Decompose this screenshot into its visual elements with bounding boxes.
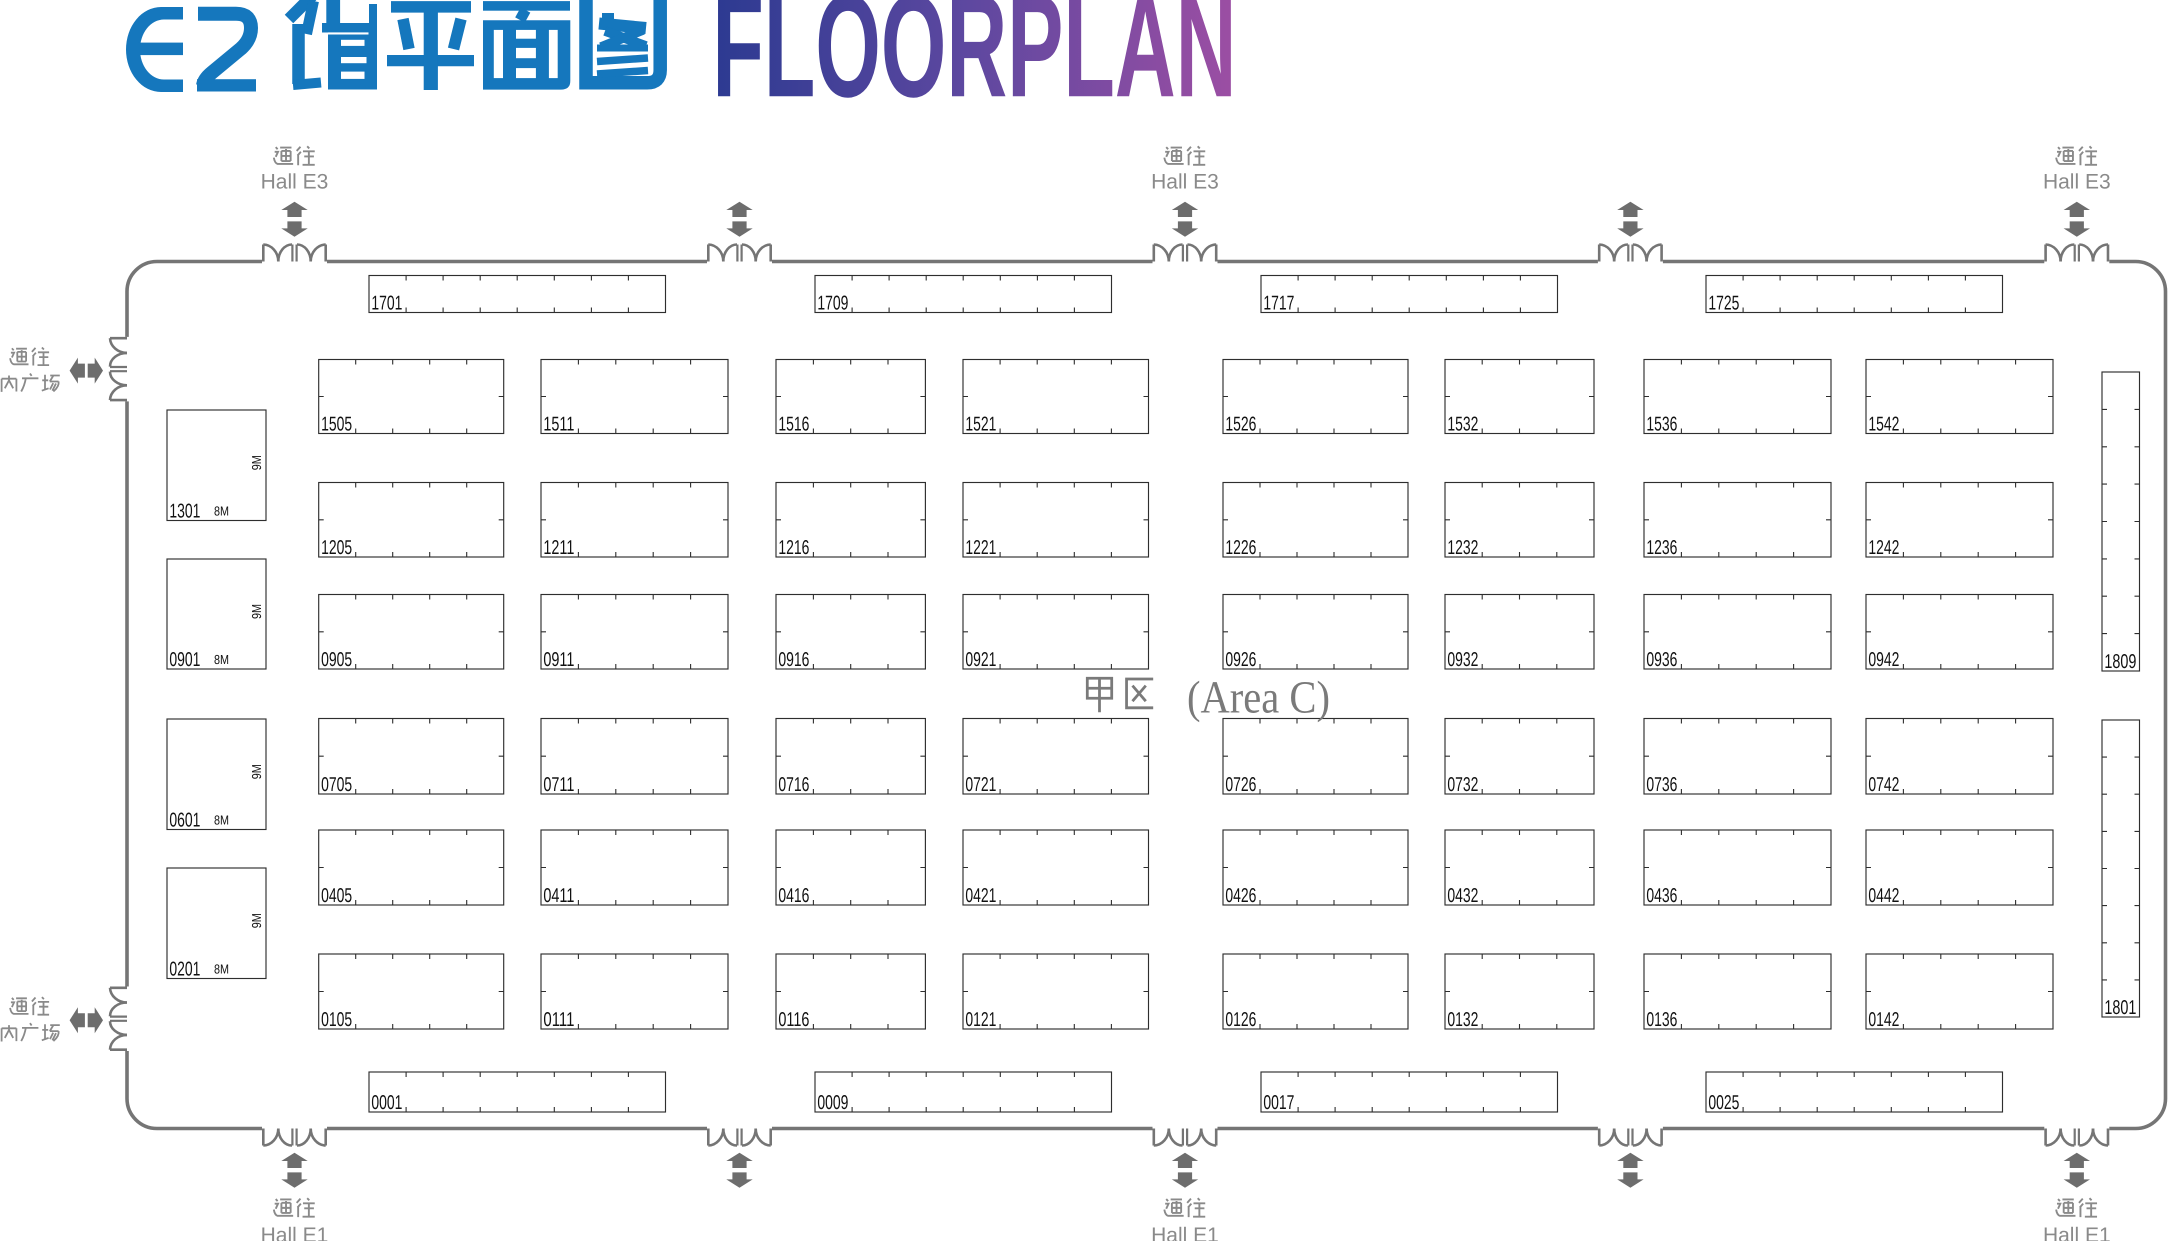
svg-text:0442: 0442 <box>1868 885 1899 907</box>
svg-text:0921: 0921 <box>965 649 996 671</box>
svg-text:1205: 1205 <box>321 537 352 559</box>
svg-text:1532: 1532 <box>1447 413 1478 435</box>
svg-text:(Area C): (Area C) <box>1187 672 1330 723</box>
svg-text:1526: 1526 <box>1225 413 1256 435</box>
svg-text:1211: 1211 <box>543 537 574 559</box>
svg-text:0711: 0711 <box>543 774 574 796</box>
svg-text:Hall E1: Hall E1 <box>2043 1224 2111 1241</box>
svg-text:0105: 0105 <box>321 1009 352 1031</box>
svg-text:1536: 1536 <box>1646 413 1677 435</box>
svg-text:FLOORPLAN: FLOORPLAN <box>712 0 1236 127</box>
svg-text:9M: 9M <box>249 604 264 619</box>
svg-text:1801: 1801 <box>2104 997 2136 1019</box>
svg-text:0436: 0436 <box>1646 885 1677 907</box>
svg-text:1221: 1221 <box>965 537 996 559</box>
svg-text:0726: 0726 <box>1225 774 1256 796</box>
svg-text:1542: 1542 <box>1868 413 1899 435</box>
svg-text:0705: 0705 <box>321 774 352 796</box>
svg-text:0732: 0732 <box>1447 774 1478 796</box>
svg-text:0405: 0405 <box>321 885 352 907</box>
svg-text:1232: 1232 <box>1447 537 1478 559</box>
svg-text:Hall E3: Hall E3 <box>1151 170 1219 193</box>
svg-text:0911: 0911 <box>543 649 574 671</box>
svg-text:0942: 0942 <box>1868 649 1899 671</box>
svg-text:0916: 0916 <box>778 649 809 671</box>
svg-text:1226: 1226 <box>1225 537 1256 559</box>
svg-text:1516: 1516 <box>778 413 809 435</box>
svg-text:1242: 1242 <box>1868 537 1899 559</box>
svg-text:0121: 0121 <box>965 1009 996 1031</box>
svg-text:0901: 0901 <box>169 649 200 671</box>
svg-text:0025: 0025 <box>1708 1092 1739 1114</box>
svg-text:0421: 0421 <box>965 885 996 907</box>
svg-text:0132: 0132 <box>1447 1009 1478 1031</box>
svg-text:1521: 1521 <box>965 413 996 435</box>
svg-text:1511: 1511 <box>543 413 574 435</box>
svg-text:0201: 0201 <box>169 958 200 980</box>
svg-text:1809: 1809 <box>2104 651 2136 673</box>
svg-text:0432: 0432 <box>1447 885 1478 907</box>
svg-text:0926: 0926 <box>1225 649 1256 671</box>
svg-text:Hall E1: Hall E1 <box>1151 1224 1219 1241</box>
svg-text:0601: 0601 <box>169 809 200 831</box>
svg-text:1701: 1701 <box>371 292 402 314</box>
svg-text:0716: 0716 <box>778 774 809 796</box>
svg-text:0416: 0416 <box>778 885 809 907</box>
svg-text:0126: 0126 <box>1225 1009 1256 1031</box>
svg-text:0736: 0736 <box>1646 774 1677 796</box>
svg-text:0136: 0136 <box>1646 1009 1677 1031</box>
svg-text:0426: 0426 <box>1225 885 1256 907</box>
svg-text:9M: 9M <box>249 764 264 779</box>
svg-text:1301: 1301 <box>169 500 200 522</box>
svg-text:Hall E3: Hall E3 <box>2043 170 2111 193</box>
svg-text:0116: 0116 <box>778 1009 809 1031</box>
svg-text:8M: 8M <box>214 652 229 667</box>
svg-text:1216: 1216 <box>778 537 809 559</box>
svg-text:0721: 0721 <box>965 774 996 796</box>
svg-text:0017: 0017 <box>1263 1092 1294 1114</box>
svg-text:1717: 1717 <box>1263 292 1294 314</box>
svg-text:Hall E1: Hall E1 <box>261 1224 329 1241</box>
svg-text:1505: 1505 <box>321 413 352 435</box>
svg-text:0009: 0009 <box>817 1092 848 1114</box>
svg-text:9M: 9M <box>249 913 264 928</box>
svg-text:0742: 0742 <box>1868 774 1899 796</box>
svg-text:Hall E3: Hall E3 <box>261 170 329 193</box>
svg-text:1709: 1709 <box>817 292 848 314</box>
svg-text:8M: 8M <box>214 504 229 519</box>
svg-text:0111: 0111 <box>543 1009 574 1031</box>
svg-text:0001: 0001 <box>371 1092 402 1114</box>
svg-text:0936: 0936 <box>1646 649 1677 671</box>
svg-text:1236: 1236 <box>1646 537 1677 559</box>
svg-text:1725: 1725 <box>1708 292 1739 314</box>
svg-text:9M: 9M <box>249 455 264 470</box>
svg-text:0905: 0905 <box>321 649 352 671</box>
svg-text:8M: 8M <box>214 813 229 828</box>
svg-text:0932: 0932 <box>1447 649 1478 671</box>
svg-text:0142: 0142 <box>1868 1009 1899 1031</box>
svg-text:0411: 0411 <box>543 885 574 907</box>
svg-text:8M: 8M <box>214 962 229 977</box>
